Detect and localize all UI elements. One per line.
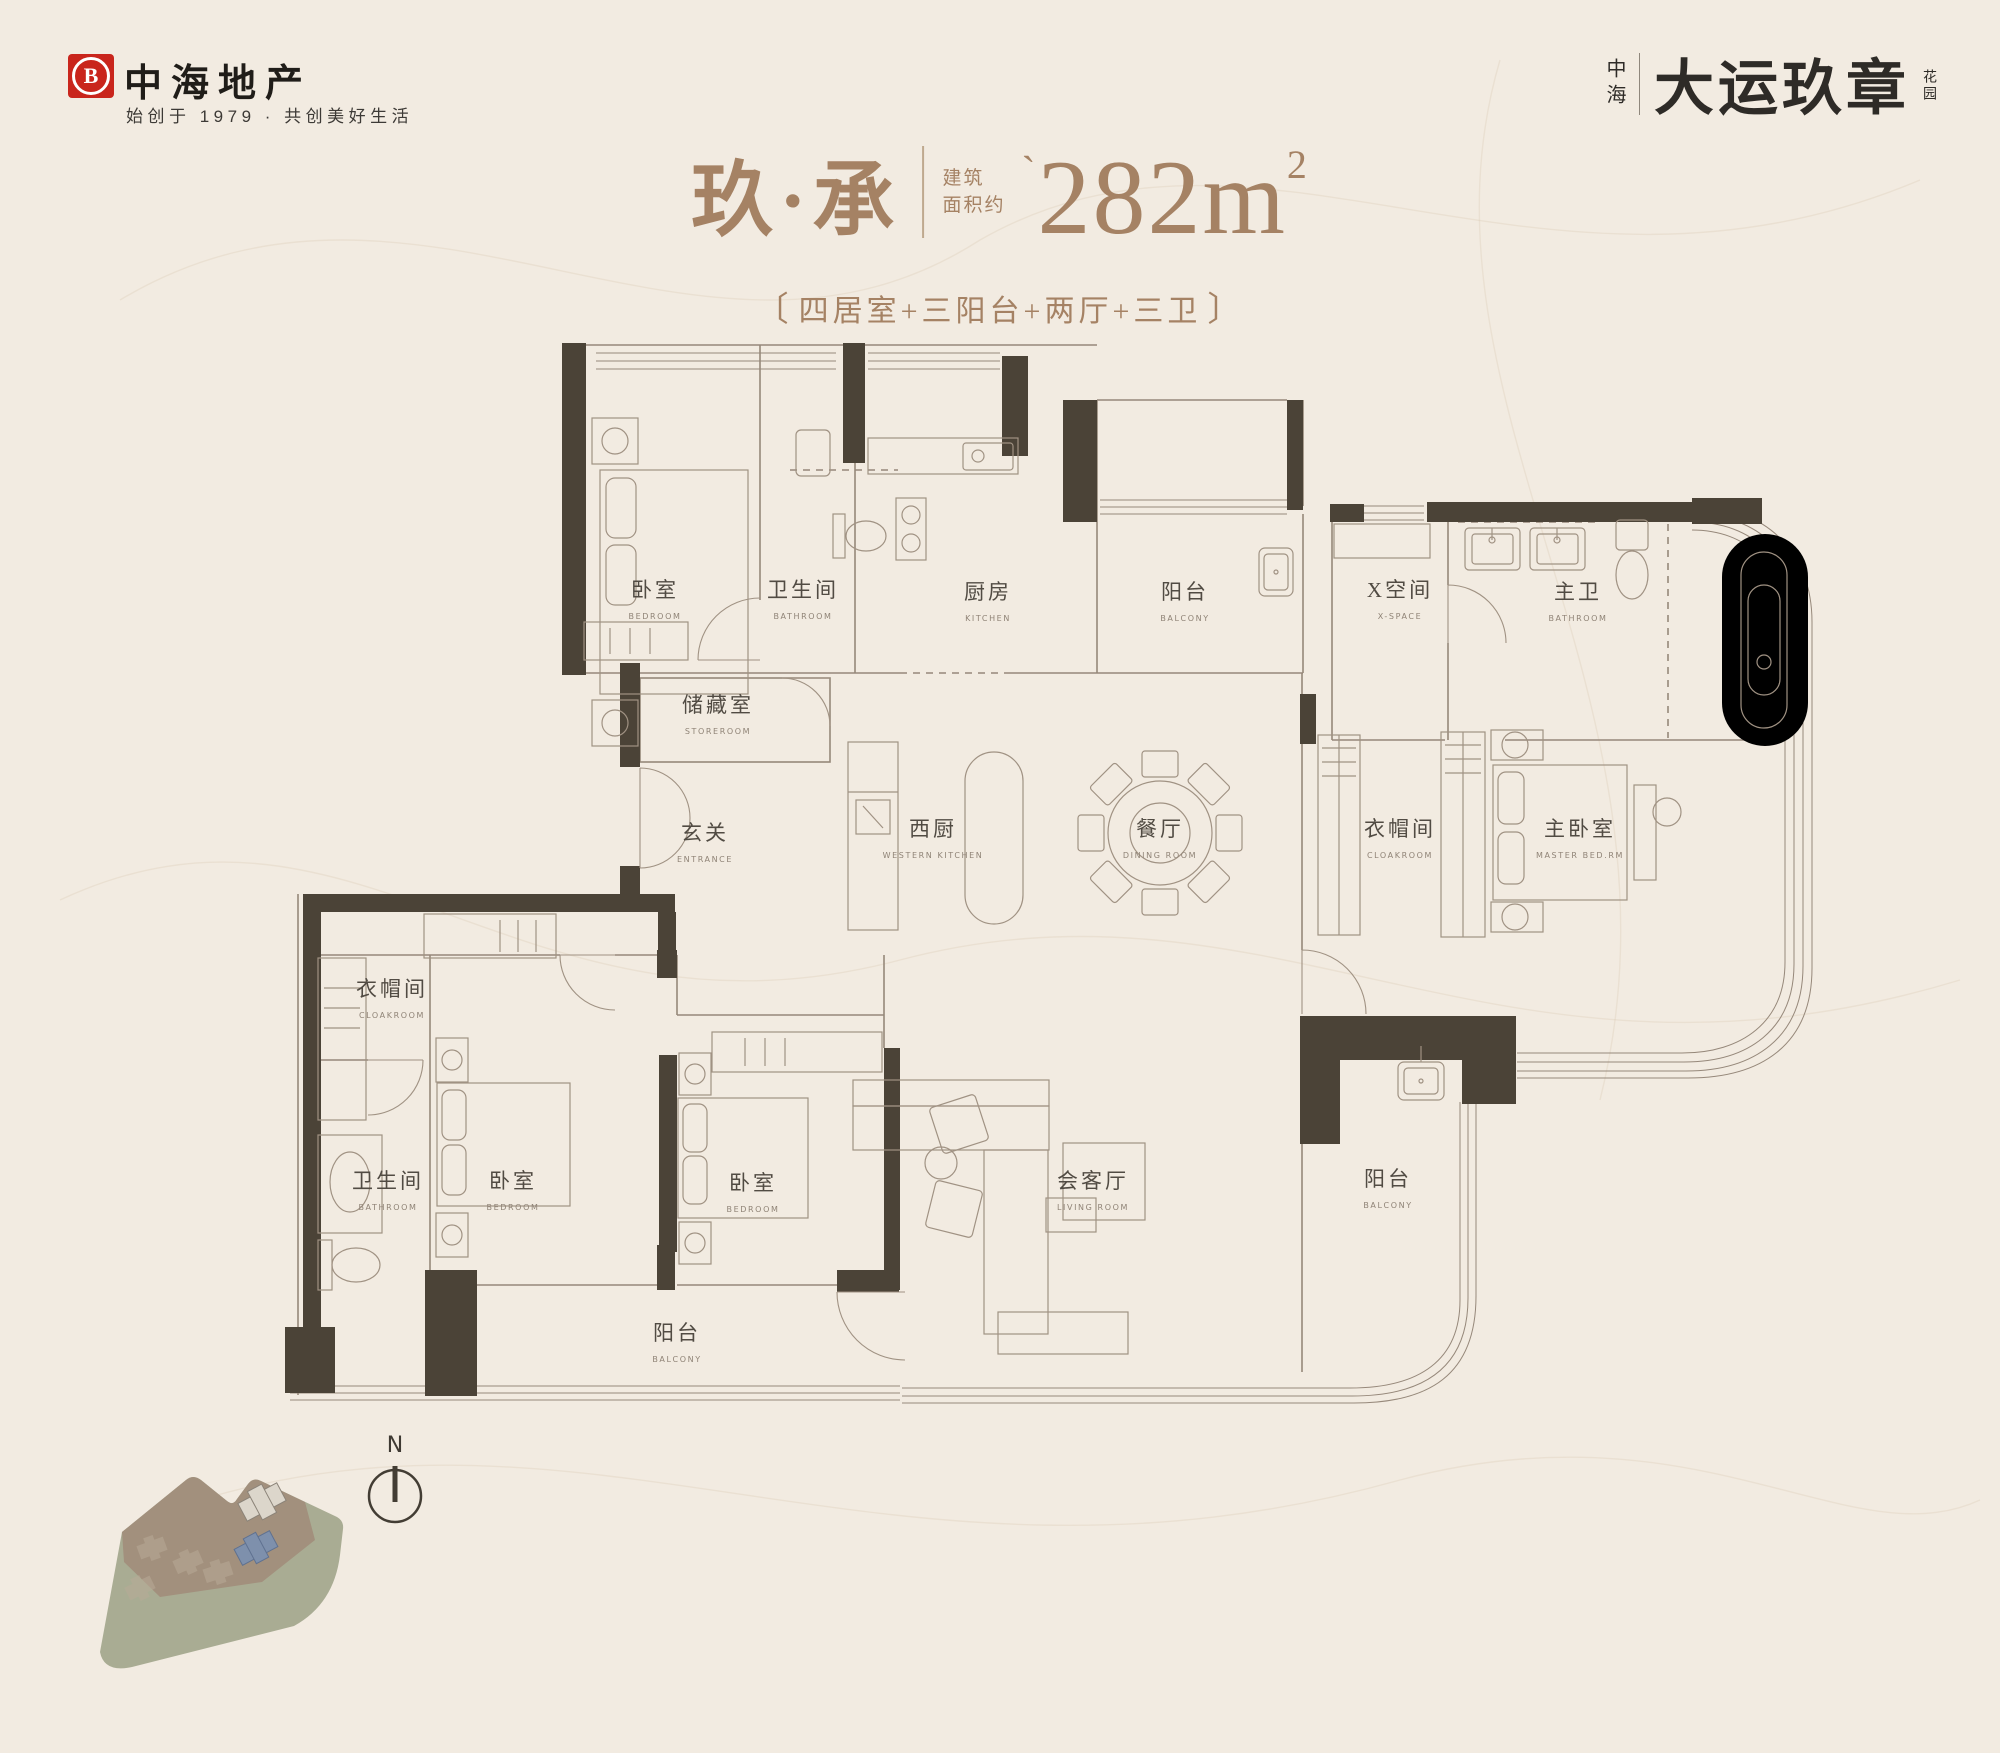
poster-page: 卧室BEDROOM卫生间BATHROOM厨房KITCHEN阳台BALCONYX空…: [0, 0, 2000, 1753]
subtitle-text: 四居室+三阳台+两厅+三卫: [799, 295, 1202, 328]
project-suffix: 花园: [1918, 69, 1938, 103]
room-label-en-master-bedroom: MASTER BED.RM: [1536, 851, 1624, 860]
room-label-en-entrance: ENTRANCE: [677, 855, 733, 864]
brand-name: 中海地产: [124, 52, 312, 107]
bracket-left: 〔: [755, 292, 793, 329]
room-label-en-living: LIVING ROOM: [1057, 1203, 1129, 1212]
background-texture: [60, 60, 1980, 1525]
room-labels: 卧室BEDROOM卫生间BATHROOM厨房KITCHEN阳台BALCONYX空…: [352, 578, 1624, 1364]
room-label-x-space: X空间: [1367, 578, 1433, 602]
room-label-en-bath-1: BATHROOM: [773, 612, 832, 621]
room-label-en-dining: DINING ROOM: [1123, 851, 1197, 860]
room-label-master-bath: 主卫: [1554, 580, 1602, 604]
project-name: 大运玖章: [1654, 40, 1910, 127]
area-label-line2: 面积约: [942, 192, 1005, 220]
room-label-en-bedroom-3: BEDROOM: [727, 1205, 780, 1214]
room-label-en-storage: STOREROOM: [685, 727, 751, 736]
brand-tagline: 始创于 1979 · 共创美好生活: [126, 102, 413, 127]
area-superscript: 2: [1287, 142, 1309, 187]
unit-title-block: 玖·承 建筑 面积约 `282m2: [691, 146, 1309, 242]
room-label-balcony-north: 阳台: [1161, 580, 1209, 604]
floorplan-svg: 卧室BEDROOM卫生间BATHROOM厨房KITCHEN阳台BALCONYX空…: [0, 0, 2000, 1753]
area-value: `282m2: [1015, 155, 1308, 242]
room-label-balcony-south: 阳台: [653, 1321, 701, 1345]
room-label-bath-2: 卫生间: [352, 1169, 424, 1193]
room-label-bedroom-2: 卧室: [489, 1169, 537, 1193]
furniture: [318, 418, 1787, 1354]
room-label-bedroom-1: 卧室: [631, 578, 679, 602]
room-label-en-western-kitchen: WESTERN KITCHEN: [883, 851, 984, 860]
area-label: 建筑 面积约: [942, 165, 1005, 220]
room-label-en-balcony-north: BALCONY: [1160, 614, 1209, 623]
room-label-en-balcony-east: BALCONY: [1363, 1201, 1412, 1210]
room-label-en-x-space: X-SPACE: [1378, 612, 1423, 621]
room-label-en-kitchen: KITCHEN: [965, 614, 1011, 623]
unit-name: 玖·承: [691, 160, 900, 242]
unit-subtitle: 〔四居室+三阳台+两厅+三卫〕: [749, 282, 1252, 331]
room-label-cloakroom-2: 衣帽间: [356, 977, 428, 1001]
room-label-living: 会客厅: [1057, 1169, 1129, 1193]
area-tick: `: [1021, 149, 1037, 195]
room-label-en-cloakroom-master: CLOAKROOM: [1367, 851, 1433, 860]
site-map: [100, 1477, 343, 1668]
brand-logo: B: [68, 54, 114, 98]
bracket-right: 〕: [1207, 292, 1245, 329]
title-divider: [922, 146, 924, 238]
room-label-en-master-bath: BATHROOM: [1548, 614, 1607, 623]
project-divider: [1639, 53, 1640, 115]
area-label-line1: 建筑: [942, 165, 1005, 193]
room-label-entrance: 玄关: [681, 821, 729, 845]
area-unit: m: [1202, 139, 1286, 256]
room-label-kitchen: 厨房: [964, 580, 1012, 604]
room-label-en-bedroom-2: BEDROOM: [487, 1203, 540, 1212]
north-arrow: N: [369, 1433, 421, 1522]
brand-logo-letter: B: [84, 65, 99, 87]
project-prefix: 中海: [1600, 58, 1629, 110]
room-label-bath-1: 卫生间: [767, 578, 839, 602]
room-label-dining: 餐厅: [1136, 817, 1184, 841]
room-label-cloakroom-master: 衣帽间: [1364, 817, 1436, 841]
area-number: 282: [1037, 139, 1202, 256]
door-swings: [368, 585, 1506, 1360]
room-label-master-bedroom: 主卧室: [1544, 817, 1616, 841]
room-label-en-bath-2: BATHROOM: [358, 1203, 417, 1212]
room-label-bedroom-3: 卧室: [729, 1171, 777, 1195]
room-label-balcony-east: 阳台: [1364, 1167, 1412, 1191]
brand-logo-ring: B: [72, 57, 110, 95]
north-label: N: [387, 1433, 403, 1458]
room-label-en-cloakroom-2: CLOAKROOM: [359, 1011, 425, 1020]
room-label-en-balcony-south: BALCONY: [652, 1355, 701, 1364]
project-name-block: 中海 大运玖章 花园: [1600, 40, 1938, 127]
room-label-western-kitchen: 西厨: [909, 817, 957, 841]
room-label-storage: 储藏室: [682, 693, 754, 717]
room-label-en-bedroom-1: BEDROOM: [629, 612, 682, 621]
